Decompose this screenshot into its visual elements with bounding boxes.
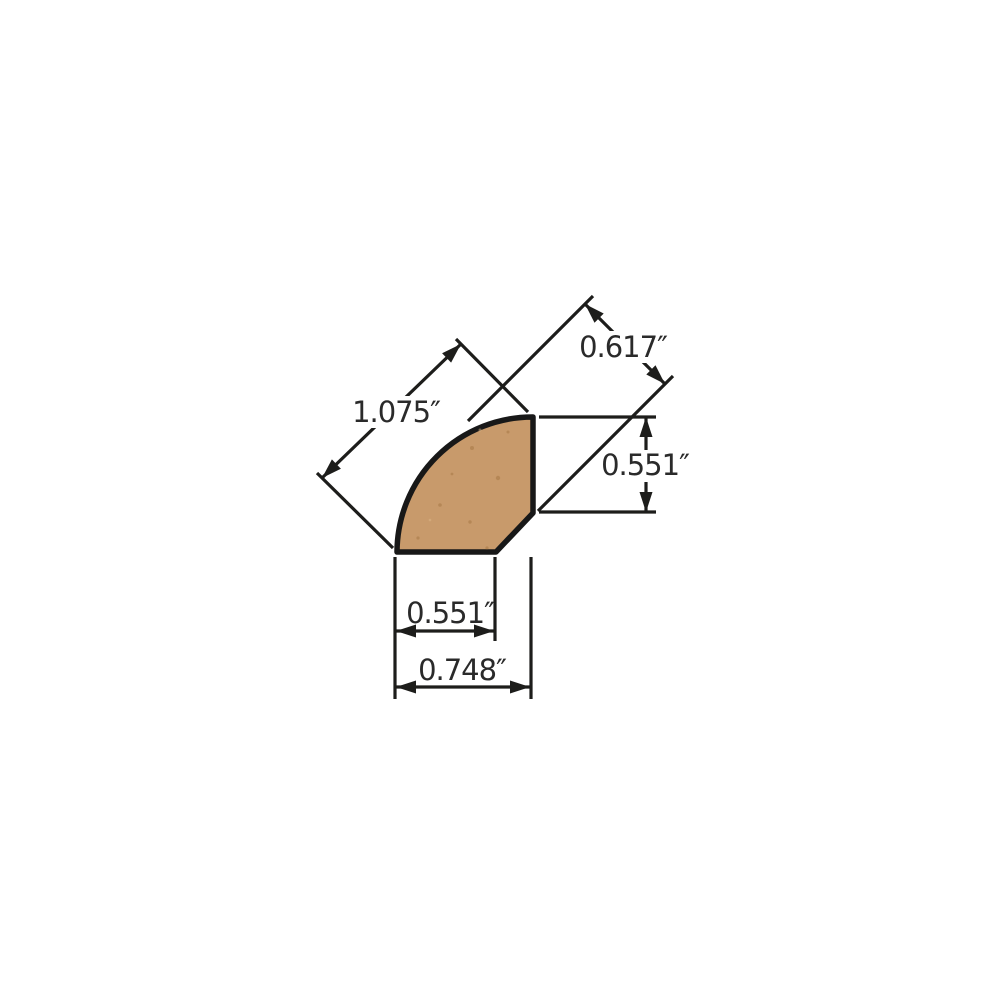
profile-dimension-drawing: 1.075″ 0.617″ 0.551″ 0.551″ 0.748″	[0, 0, 1000, 1000]
wood-speckle	[416, 536, 419, 539]
wood-speckle	[470, 446, 474, 450]
wood-speckle	[451, 473, 454, 476]
wood-speckle	[507, 431, 510, 434]
dimension-label-top-projection: 0.617″	[579, 330, 668, 364]
wood-speckle	[429, 519, 432, 522]
dimension-label-bottom-inner-width: 0.551″	[406, 596, 495, 630]
wood-speckle	[438, 503, 442, 507]
dimension-label-face-diagonal: 1.075″	[352, 395, 441, 429]
dimension-label-overall-width: 0.748″	[418, 653, 507, 687]
wood-speckle	[485, 546, 488, 549]
wood-speckle	[496, 476, 500, 480]
wood-speckle	[468, 520, 471, 523]
wood-speckle	[479, 429, 482, 432]
drawing-canvas: 1.075″ 0.617″ 0.551″ 0.551″ 0.748″	[0, 0, 1000, 1000]
dimension-label-right-face-height: 0.551″	[601, 448, 690, 482]
